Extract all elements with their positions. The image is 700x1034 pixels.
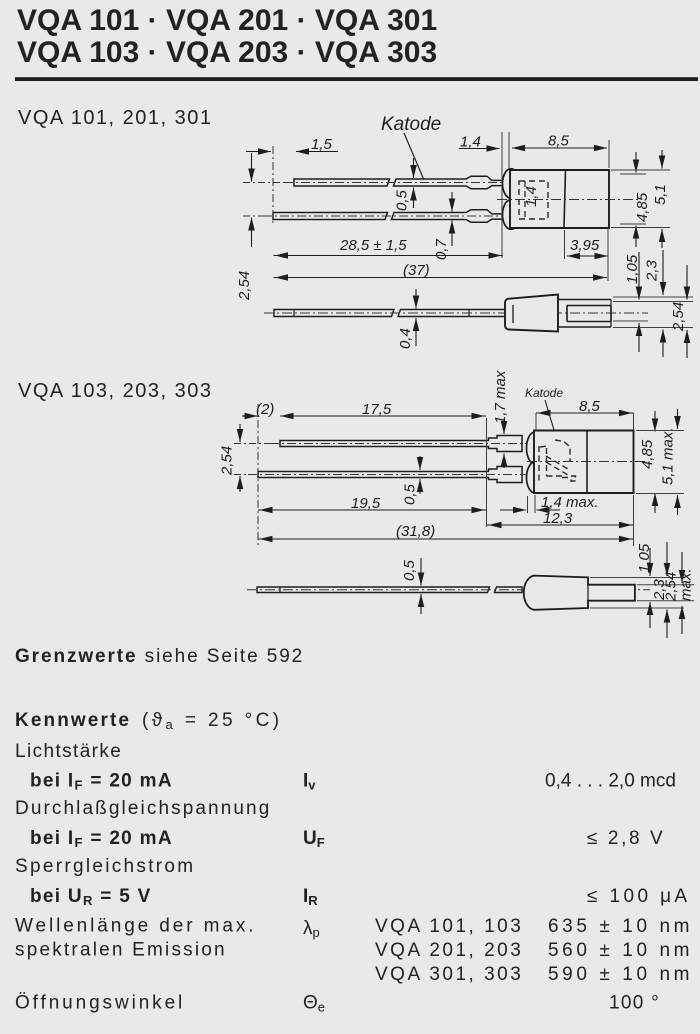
svg-text:0,7: 0,7 [433,238,450,260]
svg-text:3,95: 3,95 [570,237,600,254]
svg-text:0,5: 0,5 [402,483,419,505]
svg-text:bei IF = 20 mA: bei IF = 20 mA [30,771,173,793]
svg-text:bei IF = 20 mA: bei IF = 20 mA [30,828,173,850]
svg-text:2,3: 2,3 [644,259,661,282]
svg-text:(ϑa = 25 °C): (ϑa = 25 °C) [142,710,282,732]
svg-text:≤ 2,8 V: ≤ 2,8 V [587,828,665,849]
svg-text:635 ± 10 nm: 635 ± 10 nm [548,916,693,937]
svg-text:1,4: 1,4 [523,186,540,207]
svg-text:0,5: 0,5 [394,189,411,211]
svg-text:28,5 ± 1,5: 28,5 ± 1,5 [339,237,407,254]
svg-text:(2): (2) [256,401,274,418]
svg-text:Grenzwerte siehe Seite 592: Grenzwerte siehe Seite 592 [15,646,304,667]
svg-text:≤ 100 μA: ≤ 100 μA [587,886,691,907]
svg-text:4,85: 4,85 [639,439,656,469]
svg-text:1,4 max.: 1,4 max. [541,494,599,511]
svg-text:VQA 201, 203: VQA 201, 203 [375,940,523,961]
svg-text:Katode: Katode [525,386,563,400]
svg-text:590 ± 10 nm: 590 ± 10 nm [548,964,693,985]
svg-text:VQA 101, 201, 301: VQA 101, 201, 301 [18,107,213,129]
svg-text:5,1 max.: 5,1 max. [660,427,677,485]
svg-text:(37): (37) [403,262,430,279]
svg-text:VQA 103 · VQA 203 · VQA 303: VQA 103 · VQA 203 · VQA 303 [17,36,437,69]
svg-text:1,7 max: 1,7 max [492,370,509,424]
svg-text:VQA 103, 203, 303: VQA 103, 203, 303 [18,380,213,402]
svg-text:Wellenlänge der max.: Wellenlänge der max. [15,916,256,937]
svg-text:2,54: 2,54 [219,446,236,476]
svg-text:max.: max. [678,568,695,601]
svg-text:Durchlaßgleichspannung: Durchlaßgleichspannung [15,798,271,819]
svg-text:5,1: 5,1 [652,184,669,205]
svg-text:2,54: 2,54 [236,271,253,301]
svg-text:VQA 101, 103: VQA 101, 103 [375,916,523,937]
svg-text:2,54: 2,54 [670,302,687,332]
svg-text:(31,8): (31,8) [396,523,435,540]
svg-text:8,5: 8,5 [548,133,570,150]
svg-text:560 ± 10 nm: 560 ± 10 nm [548,940,693,961]
svg-text:0,5: 0,5 [401,559,418,581]
svg-text:0,4 . . . 2,0 mcd: 0,4 . . . 2,0 mcd [545,771,676,792]
svg-text:Lichtstärke: Lichtstärke [15,741,122,762]
svg-text:Kennwerte: Kennwerte [15,710,131,731]
svg-text:VQA 101 · VQA 201 · VQA 301: VQA 101 · VQA 201 · VQA 301 [17,4,437,37]
svg-text:VQA 301, 303: VQA 301, 303 [375,964,523,985]
svg-text:100 °: 100 ° [609,993,660,1014]
svg-text:spektralen Emission: spektralen Emission [15,940,227,961]
svg-text:Öffnungswinkel: Öffnungswinkel [15,993,185,1014]
svg-text:Sperrgleichstrom: Sperrgleichstrom [15,856,195,877]
svg-text:4,85: 4,85 [634,192,651,222]
svg-text:1,5: 1,5 [311,136,333,153]
svg-text:0,4: 0,4 [397,328,414,349]
svg-text:Katode: Katode [381,114,441,135]
